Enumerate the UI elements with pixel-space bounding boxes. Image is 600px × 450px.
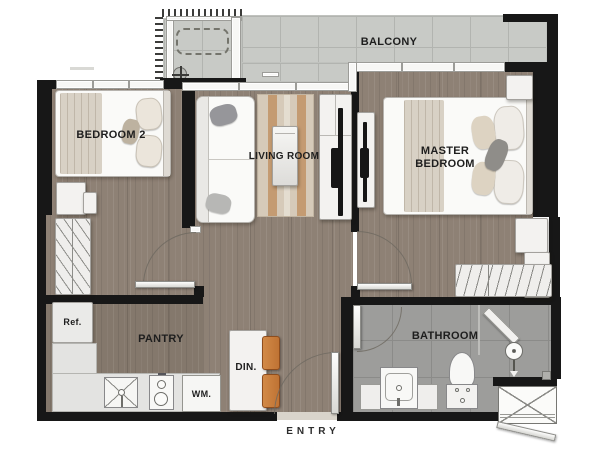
balcony-divider (231, 17, 241, 82)
master-nightstand (506, 75, 533, 100)
ac-condenser-icon (176, 28, 229, 55)
bedroom2-desk-chair (83, 192, 97, 214)
bedroom2-wardrobe (55, 218, 91, 295)
toilet-bowl (449, 352, 475, 388)
wall-master-right (533, 70, 558, 217)
vanity-sink (380, 367, 418, 409)
bedroom2-blanket (60, 93, 102, 174)
fridge: Ref. (52, 302, 93, 343)
sofa-pillow-gray (208, 102, 239, 129)
bedroom2-desk (56, 182, 86, 215)
bedroom2-bed (55, 90, 171, 177)
shaft-door-leaf (496, 421, 556, 441)
tv-master-stand (360, 148, 369, 178)
master-wardrobe (455, 264, 552, 297)
bathroom-floor-drain (542, 371, 551, 380)
bedroom2-window (56, 80, 164, 89)
master-bed (383, 97, 533, 215)
wall-bedroom2-living (182, 84, 195, 228)
sliding-track-symbol (262, 72, 279, 77)
shower-arrow (510, 371, 518, 377)
master-frame-corner (348, 62, 357, 92)
wall-top-left-corner (37, 80, 58, 89)
wall-bedroom2-door-stub (194, 286, 204, 297)
floor-plan: Ref. WM. (0, 0, 600, 450)
wall-hall-bathroom (341, 297, 353, 420)
wall-balcony-right (547, 14, 558, 72)
entry-label: ENTRY (263, 426, 363, 438)
coffee-table (272, 126, 298, 186)
fridge-label: Ref. (53, 317, 92, 328)
bathroom-glass-partition (478, 305, 480, 355)
shower-stem (513, 360, 515, 371)
dining-chair (262, 336, 280, 370)
balcony-railing-left (155, 17, 163, 80)
master-blanket (404, 100, 444, 212)
living-sofa (196, 96, 255, 223)
burner-large (154, 392, 168, 406)
wall-window-stub (162, 80, 182, 89)
washing-machine-label: WM. (183, 389, 220, 400)
balcony-floor-upper (241, 15, 547, 63)
faucet-icon (121, 396, 123, 407)
burner-small (157, 380, 166, 389)
living-sliding-door (182, 82, 351, 91)
master-door-leaf (357, 283, 412, 290)
wall-bathroom-top (341, 297, 561, 305)
shower-head-icon (505, 342, 523, 360)
master-desk (515, 218, 548, 253)
bathroom-door-leaf (353, 305, 361, 349)
entry-door-leaf (331, 352, 339, 414)
master-sliding-door (348, 62, 505, 72)
wall-left-lower (37, 213, 46, 420)
wall-bathroom-right (551, 305, 561, 379)
tv-living-stand (331, 148, 343, 188)
dimension-tick (70, 67, 94, 70)
bedroom2-door-leaf (135, 281, 195, 288)
balcony-floor-lower (241, 62, 351, 82)
bedroom2-pillow (135, 134, 164, 168)
wall-left-upper (37, 80, 52, 215)
toilet-tank (446, 384, 478, 409)
wall-bottom-left (37, 412, 277, 421)
stove (149, 375, 174, 410)
bedroom2-headboard (163, 91, 170, 176)
kitchen-sink (104, 377, 138, 408)
master-headboard (526, 98, 532, 214)
wall-bottom-right (337, 412, 498, 421)
washing-machine: WM. (182, 375, 221, 412)
shaft-hatch-box (498, 386, 557, 424)
